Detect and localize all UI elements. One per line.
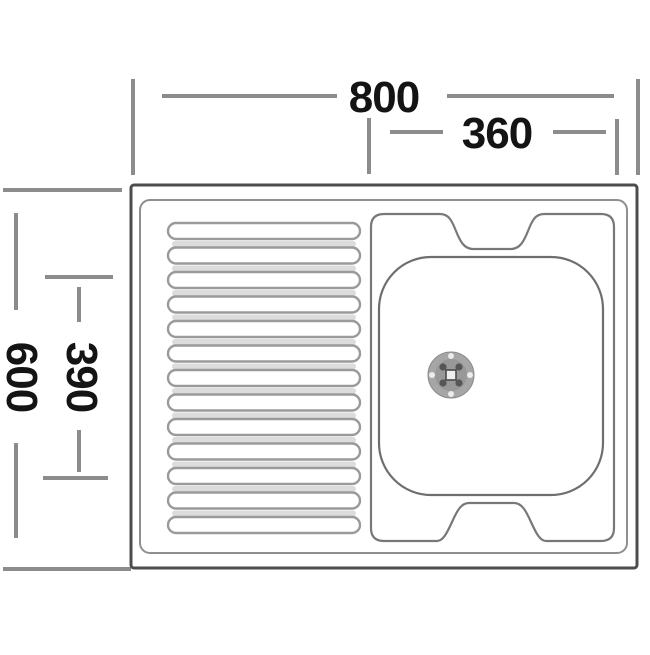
drain-slot-top [448,353,454,359]
drainboard-rib-shadow [172,413,356,419]
dimension-label-overall-width: 800 [349,73,419,122]
drain-icon [428,352,474,398]
drain-slot-bottom [448,391,454,397]
bowl-basin [379,257,603,495]
drain-slot-left [429,372,435,378]
drain-center-cross [446,370,456,380]
drainboard-rib-shadow [172,462,356,468]
drainboard-rib [168,223,360,239]
drain-slot-right [467,372,473,378]
drainboard-rib [168,517,360,533]
drainboard-rib-shadow [172,241,356,247]
drainboard-rib [168,248,360,264]
drainboard-ribs [168,223,360,533]
drainboard-rib-shadow [172,437,356,443]
dimension-label-overall-depth: 600 [0,342,46,412]
drainboard-rib [168,444,360,460]
drainboard-rib [168,321,360,337]
drainboard-rib [168,370,360,386]
drainboard-rib [168,419,360,435]
dimension-label-bowl-depth: 390 [57,342,106,412]
drainboard-rib-shadow [172,486,356,492]
drainboard-rib [168,493,360,509]
drainboard-rib-shadow [172,290,356,296]
drainboard-rib [168,297,360,313]
drainboard-rib [168,395,360,411]
drainboard-rib-shadow [172,315,356,321]
sink-technical-drawing: 800 360 600 390 [0,0,650,650]
sink-drawing [131,185,637,568]
drainboard-rib-shadow [172,266,356,272]
drainboard-rib-shadow [172,364,356,370]
dimension-label-bowl-width: 360 [462,109,532,158]
drainboard-rib [168,346,360,362]
drainboard-rib [168,272,360,288]
drainboard-rib-shadow [172,511,356,517]
drainboard-rib [168,468,360,484]
drawing-svg: 800 360 600 390 [0,0,650,650]
drainboard-rib-shadow [172,388,356,394]
drainboard-rib-shadow [172,339,356,345]
